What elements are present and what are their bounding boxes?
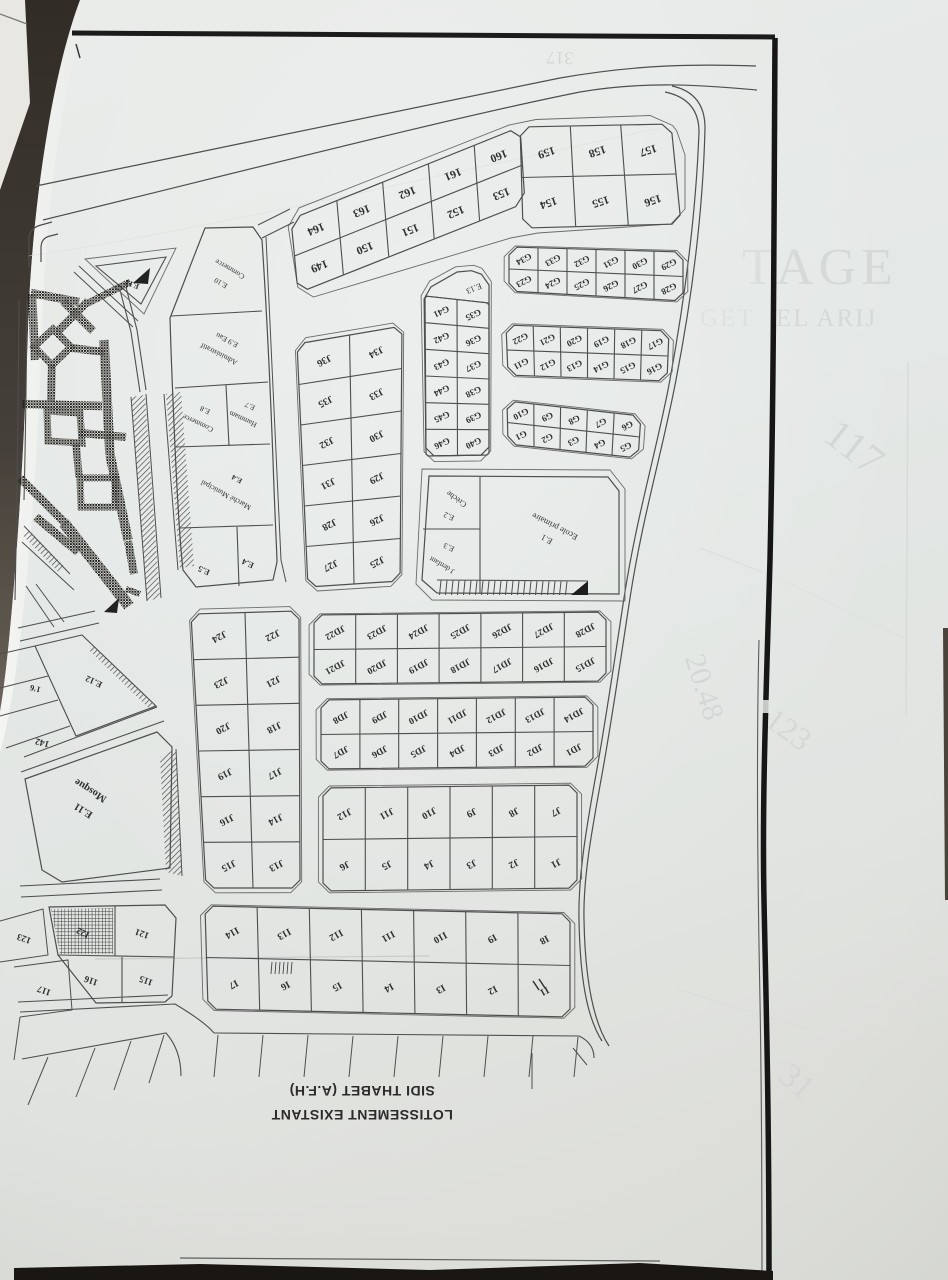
svg-text:GET: GET xyxy=(700,305,755,332)
svg-text:LOTISSEMENT EXISTANT: LOTISSEMENT EXISTANT xyxy=(271,1107,453,1123)
svg-text:317: 317 xyxy=(546,48,574,69)
svg-text:SIDI THABET (A.F.H): SIDI THABET (A.F.H) xyxy=(289,1083,435,1099)
svg-text:EL ARIJ: EL ARIJ xyxy=(776,305,877,332)
svg-text:AGE: AGE xyxy=(776,239,898,296)
